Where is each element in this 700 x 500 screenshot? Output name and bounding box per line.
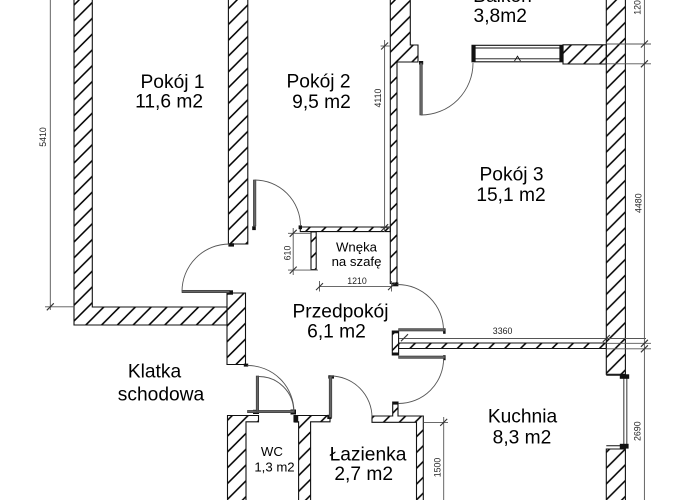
svg-text:schodowa: schodowa <box>118 385 205 406</box>
svg-text:Kuchnia: Kuchnia <box>488 406 558 427</box>
svg-text:1,3 m2: 1,3 m2 <box>254 459 294 474</box>
svg-text:4110: 4110 <box>373 89 383 108</box>
svg-text:Łazienka: Łazienka <box>330 444 407 465</box>
svg-text:2,7 m2: 2,7 m2 <box>334 464 393 485</box>
svg-text:Przedpokój: Przedpokój <box>293 301 389 322</box>
svg-text:6,1 m2: 6,1 m2 <box>307 321 366 342</box>
svg-text:4480: 4480 <box>633 193 643 213</box>
svg-text:1200: 1200 <box>633 0 643 15</box>
svg-text:1500: 1500 <box>432 458 442 478</box>
svg-text:Pokój 3: Pokój 3 <box>480 165 544 186</box>
svg-text:5410: 5410 <box>38 127 48 147</box>
svg-text:2690: 2690 <box>633 421 643 441</box>
svg-text:Wnęka: Wnęka <box>336 239 378 254</box>
svg-text:1210: 1210 <box>347 276 367 286</box>
svg-text:11,6 m2: 11,6 m2 <box>135 92 203 113</box>
svg-text:610: 610 <box>282 246 292 261</box>
svg-text:Pokój 2: Pokój 2 <box>287 72 351 93</box>
svg-text:Klatka: Klatka <box>128 362 182 383</box>
svg-text:15,1 m2: 15,1 m2 <box>476 185 545 206</box>
svg-text:8,3 m2: 8,3 m2 <box>493 427 552 448</box>
svg-text:na szafę: na szafę <box>332 254 382 269</box>
svg-text:WC: WC <box>261 444 283 459</box>
svg-text:Pokój 1: Pokój 1 <box>141 72 205 93</box>
svg-text:9,5 m2: 9,5 m2 <box>292 92 351 113</box>
svg-text:3360: 3360 <box>493 326 513 336</box>
svg-text:3,8m2: 3,8m2 <box>474 6 527 27</box>
